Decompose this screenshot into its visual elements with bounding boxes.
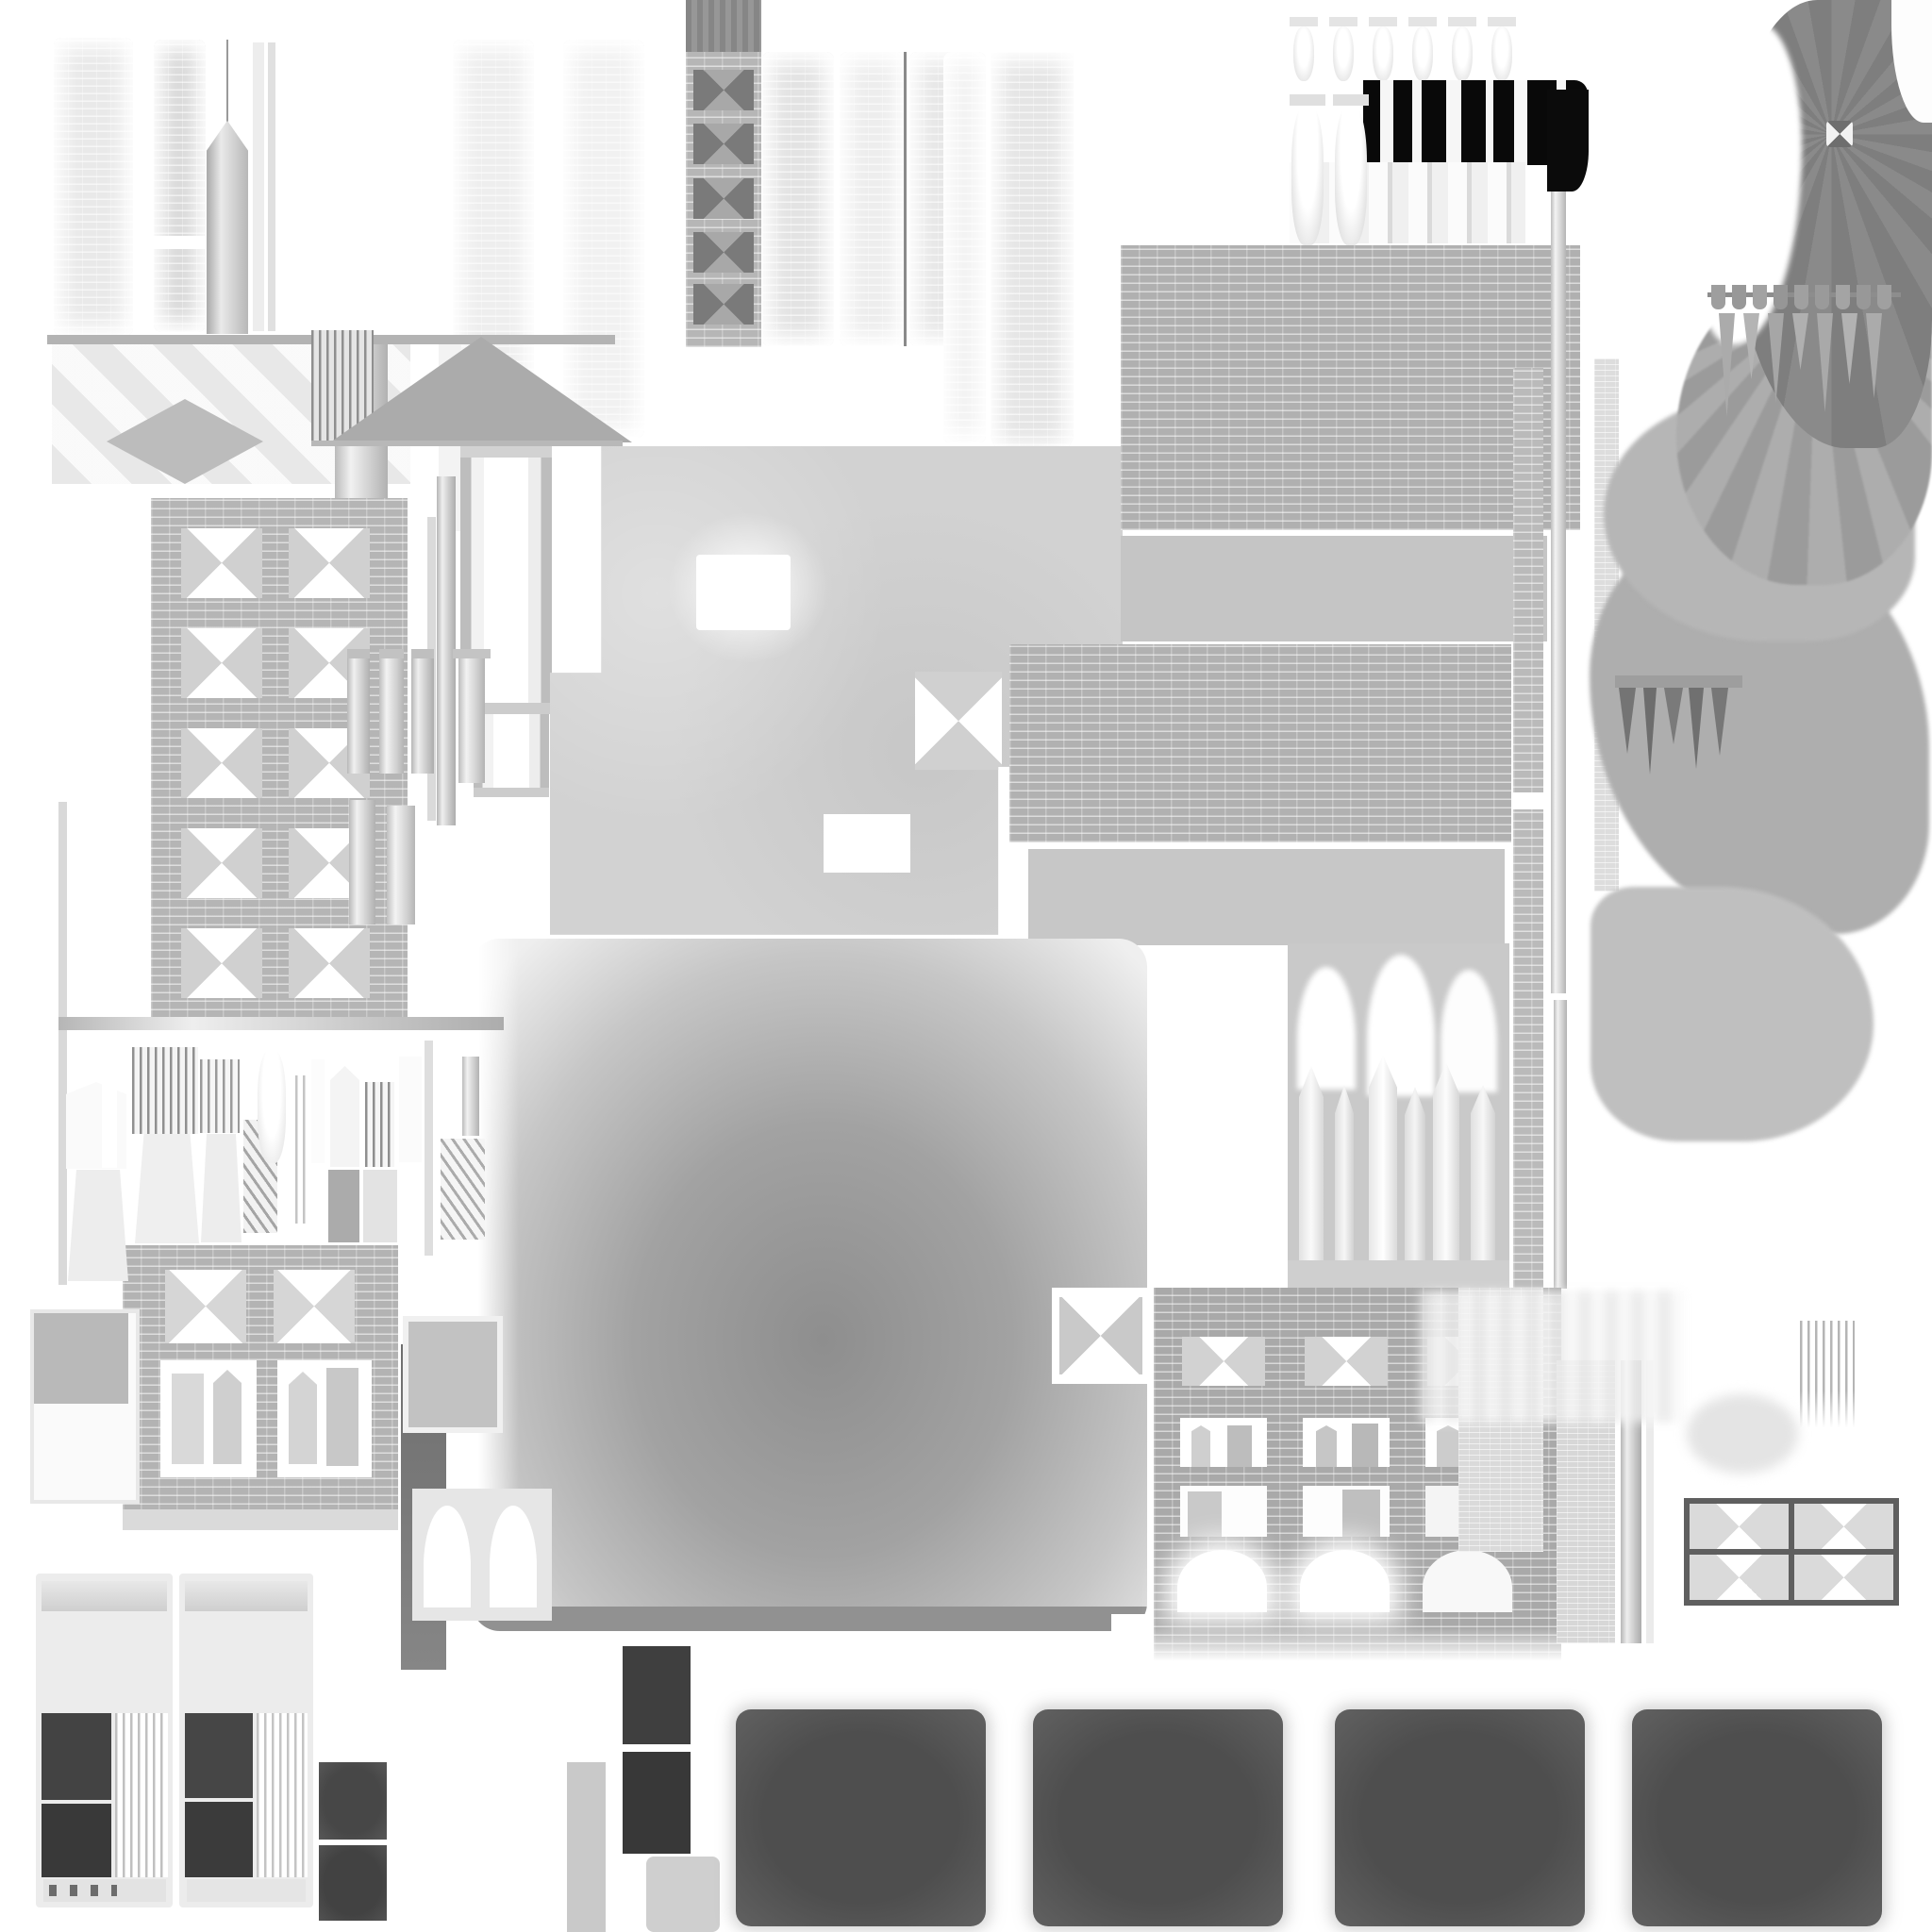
left-cap-2 (1333, 94, 1369, 106)
blob-notch (1111, 1614, 1147, 1631)
baluster-body-2 (1333, 26, 1354, 81)
brick-column-h (943, 52, 986, 443)
ps3-bar-1 (349, 800, 375, 924)
tooth-6 (1815, 285, 1829, 309)
opening-2-pane (326, 1368, 358, 1466)
louver-comb-1 (132, 1047, 198, 1134)
window-r3c1 (181, 728, 262, 798)
ray-5 (1817, 313, 1833, 412)
brick-column-f (840, 52, 906, 346)
grid-cell-3 (1690, 1555, 1789, 1600)
ps1-bar-3 (411, 658, 434, 774)
store-b-pane-2 (185, 1802, 253, 1877)
fr-pr2-glass (1342, 1490, 1380, 1537)
baluster-top-row (1290, 17, 1530, 81)
small-dark-square-2 (319, 1845, 387, 1921)
fr-door-1 (1177, 1550, 1267, 1612)
narrow-brick-column (1513, 368, 1543, 1289)
small-marble-bar (462, 1057, 479, 1136)
ps1-bar-2 (379, 658, 404, 774)
drop-1 (1619, 688, 1636, 754)
window-r5c2 (289, 928, 370, 998)
comb-piece (1800, 1321, 1855, 1448)
pillar-3 (1369, 1055, 1397, 1289)
window-grid-2x2 (1684, 1498, 1899, 1606)
pilaster-set-3 (349, 800, 436, 924)
haze-band (1420, 1291, 1684, 1423)
white-slot (154, 236, 206, 249)
storefront-b (179, 1574, 313, 1907)
window-r2c1 (181, 628, 262, 698)
white-block (363, 1170, 397, 1242)
cluster-base-bar (1288, 1260, 1509, 1289)
opening-1-pillar (213, 1370, 241, 1464)
pillar-2 (1335, 1085, 1354, 1289)
mullion-piece (365, 1082, 394, 1167)
window-r4c1 (181, 828, 262, 898)
assembly-2-base (474, 788, 549, 797)
ps2-bar (458, 658, 485, 783)
ps3-bar-2 (387, 806, 415, 924)
grid-cell-4 (1794, 1555, 1893, 1600)
baluster-body-4 (1412, 26, 1433, 81)
arch-pillar-cluster (1288, 943, 1509, 1289)
black-slot-1 (1380, 80, 1393, 165)
black-slot-3 (1446, 80, 1461, 165)
window-r1c1 (181, 528, 262, 598)
door-piece (30, 1309, 140, 1504)
dark-square-2 (1033, 1709, 1283, 1926)
column-notch (1513, 792, 1543, 809)
teeth-row-2 (1615, 675, 1742, 775)
ladder-cap (686, 0, 761, 52)
xbox-cell-4 (693, 232, 754, 273)
arch-window-piece (412, 1489, 552, 1621)
ray-1 (1719, 313, 1735, 417)
left-cap-1 (1290, 94, 1325, 106)
store-b-pane-1 (185, 1713, 253, 1798)
teeth-rail-2 (1615, 675, 1742, 688)
brick-column-b (154, 40, 206, 332)
ps1-cap-3 (411, 649, 434, 658)
baluster-cap-4 (1408, 17, 1437, 26)
drop-4 (1689, 688, 1704, 769)
thin-column (102, 1059, 117, 1168)
ray-4 (1792, 313, 1808, 370)
uv-star-mark (1826, 121, 1853, 147)
door-pane (34, 1313, 128, 1404)
blob-window-bowtie (1059, 1297, 1142, 1374)
brick-column-e (762, 52, 834, 346)
tooth-5 (1794, 285, 1808, 309)
xbox-cell-5 (693, 284, 754, 325)
black-patch (1547, 90, 1589, 192)
thin-strip-c (253, 42, 264, 331)
opening-1-pane (172, 1374, 204, 1464)
round-column (258, 1050, 286, 1163)
arch-glow-1 (1297, 967, 1356, 1090)
storefront-a (36, 1574, 173, 1907)
fr-bowtie-2 (1305, 1337, 1388, 1386)
striped-column (295, 1075, 309, 1224)
pillar-6 (1471, 1085, 1495, 1289)
dark-pane-stack (623, 1646, 691, 1854)
haze-blob (1687, 1394, 1798, 1474)
slab-hole-2 (824, 814, 910, 873)
tooth-8 (1857, 285, 1871, 309)
baluster-body-6 (1491, 26, 1512, 81)
tooth-3 (1753, 285, 1767, 309)
tooth-1 (1711, 285, 1725, 309)
house-pillar (330, 1066, 359, 1167)
obelisk (66, 1082, 126, 1169)
store-a-cap (42, 1581, 167, 1611)
fr-o2-pane (1352, 1424, 1378, 1467)
slab-x-hole (915, 672, 1002, 770)
rib-wedge (441, 1139, 485, 1240)
baluster-body-3 (1373, 26, 1393, 81)
brick-column-d (563, 40, 644, 438)
grid-cell-2 (1794, 1504, 1893, 1549)
pillar-4 (1405, 1087, 1425, 1289)
black-slot-4 (1486, 80, 1493, 165)
baluster-cap-5 (1448, 17, 1476, 26)
baluster-cap-6 (1488, 17, 1516, 26)
pilaster-set-1 (347, 649, 438, 774)
dark-pane-top (623, 1646, 691, 1744)
ps1-cap-2 (379, 649, 404, 658)
dark-square-4 (1632, 1709, 1882, 1926)
baluster-cap-2 (1329, 17, 1357, 26)
smooth-band-mid (1121, 536, 1547, 641)
assembly-cap (460, 446, 552, 458)
store-b-cap (185, 1581, 308, 1611)
tooth-4 (1774, 285, 1788, 309)
small-dark-square-1 (319, 1762, 387, 1840)
baluster-body-5 (1452, 26, 1473, 81)
hairline-f (904, 52, 907, 346)
tooth-9 (1877, 285, 1891, 309)
store-b-bottom-bar (187, 1879, 306, 1902)
pane-piece (403, 1316, 503, 1433)
split-strip (528, 1762, 606, 1932)
drop-5 (1711, 688, 1728, 756)
tall-thin-bar (425, 1041, 433, 1256)
store-a-pane-1 (42, 1713, 111, 1800)
store-a-pane-2 (42, 1804, 111, 1877)
louver-comb-2 (200, 1059, 240, 1133)
store-a-streaks (115, 1713, 168, 1877)
fr-o1-pillar (1191, 1425, 1210, 1467)
pillar-1 (1299, 1066, 1324, 1289)
pillar-5 (1433, 1062, 1459, 1289)
ray-2 (1743, 313, 1759, 379)
dark-square-1 (736, 1709, 986, 1926)
thin-vertical-line-2 (1554, 1000, 1567, 1289)
white-column-2 (399, 1057, 422, 1162)
fr-pr1-glass (1188, 1491, 1222, 1537)
baluster-cap-1 (1290, 17, 1318, 26)
slab-hole-1 (696, 555, 791, 630)
black-slot-2 (1412, 80, 1422, 165)
pilaster-set-2 (453, 649, 491, 783)
grid-cell-1 (1690, 1504, 1789, 1549)
fr-o3-pillar (1437, 1425, 1459, 1467)
smooth-band-lower (1028, 849, 1505, 945)
fr-door-2 (1300, 1550, 1390, 1612)
fr-bottom-fade (1154, 1627, 1561, 1670)
pedestal-1 (135, 1134, 199, 1243)
black-slot-5 (1514, 80, 1527, 165)
ps1-bar-1 (347, 658, 370, 774)
tooth-7 (1836, 285, 1850, 309)
dark-pane-bottom (623, 1752, 691, 1854)
xbox-cell-1 (693, 70, 754, 110)
left-body-1 (1291, 106, 1324, 245)
baluster-cap-3 (1369, 17, 1397, 26)
ray-7 (1866, 313, 1882, 398)
window-r1c2 (289, 528, 370, 598)
brick-rect-upper (1121, 245, 1580, 530)
xbox-cell-2 (693, 124, 754, 164)
brick-column-a (54, 38, 133, 336)
baluster-body-1 (1293, 26, 1314, 81)
arch-win-1 (424, 1506, 471, 1607)
left-body-2 (1335, 106, 1367, 245)
small-gray-bit (646, 1857, 720, 1932)
tooth-2 (1732, 285, 1746, 309)
brick-column-i (991, 52, 1074, 453)
ray-3 (1768, 313, 1784, 403)
xwindow-wall-lower (123, 1245, 398, 1530)
fr-o2-pillar (1316, 1425, 1337, 1467)
drop-3 (1664, 688, 1683, 744)
white-column-1 (311, 1059, 325, 1163)
dark-square-3 (1335, 1709, 1585, 1926)
marble-pilaster (207, 121, 248, 334)
teeth-row-1 (1707, 285, 1901, 438)
ornament-row (58, 1038, 502, 1283)
thin-strip-d (268, 42, 275, 331)
ps1-cap-1 (347, 649, 370, 658)
facade-base-bar (123, 1509, 398, 1530)
xbox-ladder (686, 52, 761, 347)
texture-atlas-sheet (0, 0, 1932, 1932)
window-r5c1 (181, 928, 262, 998)
baluster-left-group (1290, 94, 1374, 245)
pedestal-2 (201, 1134, 241, 1242)
drop-2 (1643, 688, 1657, 774)
opening-2-pillar (289, 1372, 317, 1464)
brick-rect-lower (1009, 644, 1511, 842)
ps2-cap (453, 649, 491, 658)
obelisk-pedestal (68, 1170, 128, 1281)
divider-bar (58, 1017, 504, 1030)
floor-blob (472, 939, 1147, 1631)
gray-block (328, 1170, 359, 1242)
fr-bowtie-1 (1182, 1337, 1265, 1386)
ray-6 (1841, 313, 1857, 384)
window-on-blob (1052, 1288, 1150, 1384)
thin-vertical-line-1 (1551, 127, 1566, 993)
store-b-streaks (257, 1713, 308, 1877)
arch-win-2 (490, 1506, 537, 1607)
store-a-dashes (49, 1885, 117, 1896)
fr-o1-pane (1227, 1425, 1252, 1467)
fr-door-3 (1423, 1550, 1512, 1612)
xbox-cell-3 (693, 178, 754, 219)
